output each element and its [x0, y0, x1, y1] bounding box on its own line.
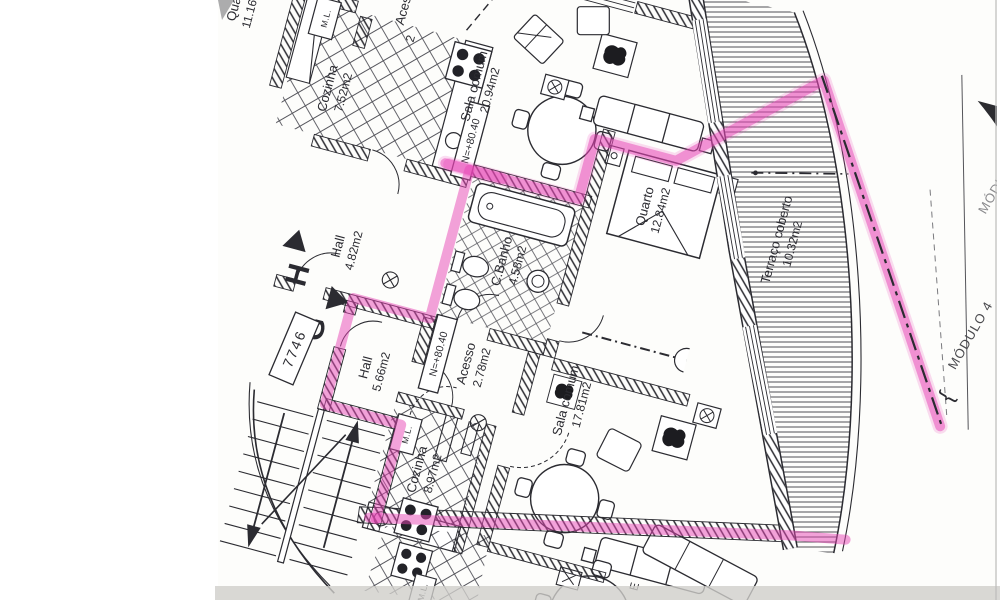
arrow-h-icon: [282, 227, 310, 253]
chair-icon: [577, 7, 609, 35]
scan-edge-band: [215, 586, 1000, 600]
scan-edge-line: [995, 0, 997, 600]
small-chair-icon: [672, 346, 690, 372]
modulo4-label: MÓDULO 4: [945, 299, 996, 372]
plant-icon: [652, 416, 696, 460]
area-label-hall1: 4.82m2: [342, 229, 366, 272]
floor-plan-svg: M.L. M.L. M.L. N=+80.40 N=+80.40 H G 774…: [0, 0, 1000, 600]
area-label-hall2: 5.66m2: [369, 350, 393, 393]
room-label-acesso-top: Acesso: [392, 0, 418, 27]
wardrobe-line: [582, 332, 686, 360]
left-margin: [0, 0, 218, 600]
tv-icon: [693, 403, 721, 429]
stamp-7746: 7746: [269, 312, 320, 385]
plant-icon: [593, 33, 637, 77]
lounge-chair-icon: [513, 14, 564, 65]
margin-items: MÓDULO 4 MÓDULO 3 {: [873, 75, 1000, 430]
tv-icon: [541, 74, 569, 100]
scanned-floor-plan-page: M.L. M.L. M.L. N=+80.40 N=+80.40 H G 774…: [0, 0, 1000, 600]
armchair-icon: [596, 428, 643, 473]
area-label-quarto1: 11.16m2: [239, 0, 264, 30]
